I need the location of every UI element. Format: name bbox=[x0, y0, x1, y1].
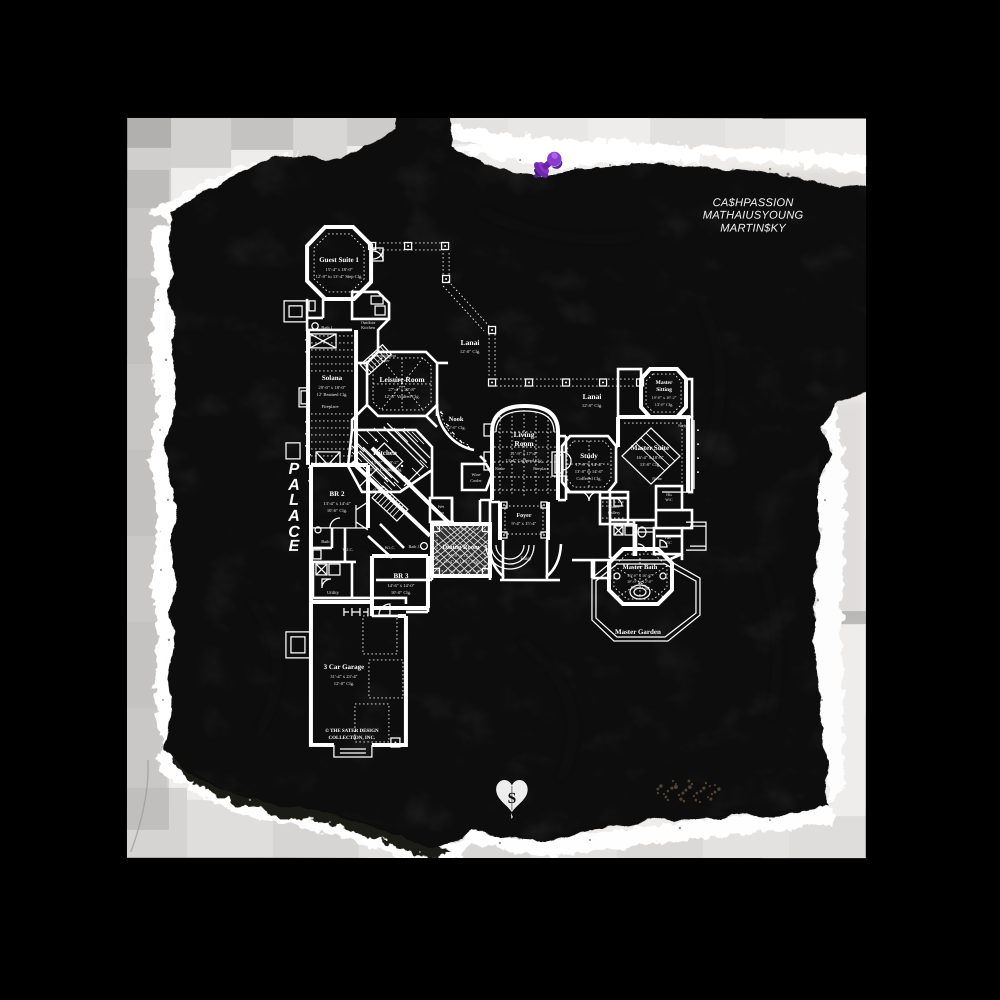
svg-text:Bath 1: Bath 1 bbox=[321, 325, 333, 330]
svg-text:Living: Living bbox=[514, 430, 535, 439]
svg-text:20′-0″ x 18′-0″: 20′-0″ x 18′-0″ bbox=[318, 385, 345, 390]
svg-text:Master Bath: Master Bath bbox=[623, 564, 658, 571]
svg-text:Master Suite: Master Suite bbox=[631, 444, 669, 452]
svg-text:Foyer: Foyer bbox=[516, 513, 531, 519]
svg-text:20′-0″ x 16′-6″: 20′-0″ x 16′-6″ bbox=[628, 573, 653, 578]
svg-text:Guest Suite 1: Guest Suite 1 bbox=[319, 256, 359, 264]
svg-text:12′-0″ Clg.: 12′-0″ Clg. bbox=[460, 349, 480, 354]
svg-text:Lanai: Lanai bbox=[583, 392, 602, 401]
svg-text:Entry: Entry bbox=[520, 557, 532, 562]
svg-text:Dome Clg.: Dome Clg. bbox=[631, 585, 649, 590]
svg-text:Niche: Niche bbox=[652, 476, 662, 481]
svg-text:Bath 2: Bath 2 bbox=[321, 539, 333, 544]
svg-text:Dining Room: Dining Room bbox=[442, 544, 480, 551]
svg-text:W.i.C.: W.i.C. bbox=[385, 545, 396, 550]
svg-text:21′-9″ x 17′-4″: 21′-9″ x 17′-4″ bbox=[510, 451, 537, 456]
svg-text:Wet: Wet bbox=[438, 504, 445, 509]
svg-text:16′-4″ x 18′-0″: 16′-4″ x 18′-0″ bbox=[636, 455, 663, 460]
svg-text:13′-4″ to 14′-0″ Clg.: 13′-4″ to 14′-0″ Clg. bbox=[443, 559, 479, 564]
svg-text:L: L bbox=[289, 492, 299, 509]
svg-text:COLLECTION, INC.: COLLECTION, INC. bbox=[329, 736, 377, 741]
svg-text:9′-4″ x 15′-4″: 9′-4″ x 15′-4″ bbox=[511, 521, 536, 526]
svg-text:MATHAIUSYOUNG: MATHAIUSYOUNG bbox=[703, 210, 804, 222]
svg-text:Niche: Niche bbox=[495, 466, 505, 471]
svg-text:10′-6″ Clg.: 10′-6″ Clg. bbox=[327, 508, 347, 513]
svg-text:12′-0″ Clg.: 12′-0″ Clg. bbox=[334, 681, 354, 686]
svg-text:14′-0″ x 17′-4″: 14′-0″ x 17′-4″ bbox=[448, 553, 474, 558]
svg-text:12′-8″ Vaulted Clg.: 12′-8″ Vaulted Clg. bbox=[384, 394, 419, 399]
svg-text:12′-0″ Clg.: 12′-0″ Clg. bbox=[446, 425, 465, 430]
svg-text:Lanai: Lanai bbox=[461, 338, 480, 347]
svg-text:A: A bbox=[287, 508, 300, 525]
svg-text:Wine: Wine bbox=[472, 472, 481, 477]
svg-text:13′-0″ to 14′-0″: 13′-0″ to 14′-0″ bbox=[575, 469, 604, 474]
svg-text:P: P bbox=[289, 461, 300, 478]
svg-text:Fireplace: Fireplace bbox=[533, 466, 549, 471]
svg-text:13′-0″ Clg.: 13′-0″ Clg. bbox=[640, 462, 660, 467]
svg-text:14′-6″ x 14′-0″: 14′-6″ x 14′-0″ bbox=[387, 583, 414, 588]
svg-text:13′-4″ x 14′-4″: 13′-4″ x 14′-4″ bbox=[323, 501, 350, 506]
svg-text:15′-4″ x 18′-0″: 15′-4″ x 18′-0″ bbox=[325, 267, 352, 272]
svg-text:12′-0″ Clg.: 12′-0″ Clg. bbox=[582, 403, 602, 408]
svg-text:Master Garden: Master Garden bbox=[615, 628, 661, 636]
svg-text:S: S bbox=[508, 790, 517, 807]
svg-text:Sitting: Sitting bbox=[656, 387, 672, 393]
svg-text:© THE SATER DESIGN: © THE SATER DESIGN bbox=[325, 728, 379, 734]
svg-text:BR 2: BR 2 bbox=[330, 490, 345, 498]
svg-text:Bath 3: Bath 3 bbox=[408, 544, 419, 549]
svg-text:Kitchen: Kitchen bbox=[361, 325, 376, 330]
svg-text:13′-4″ Coffered Clg.: 13′-4″ Coffered Clg. bbox=[505, 458, 543, 463]
svg-text:Study: Study bbox=[580, 452, 598, 460]
svg-text:Coffered Clg.: Coffered Clg. bbox=[576, 476, 601, 481]
svg-text:Fireplace: Fireplace bbox=[321, 404, 338, 409]
svg-text:Solana: Solana bbox=[322, 374, 343, 382]
svg-text:MARTIN$KY: MARTIN$KY bbox=[720, 223, 787, 235]
svg-text:Nook: Nook bbox=[449, 416, 464, 423]
svg-text:Master: Master bbox=[656, 380, 673, 386]
svg-text:Utility: Utility bbox=[327, 590, 340, 595]
svg-text:Leisure Room: Leisure Room bbox=[380, 375, 426, 384]
svg-text:Bar: Bar bbox=[438, 510, 445, 515]
svg-text:12′ Beamed Clg.: 12′ Beamed Clg. bbox=[317, 392, 348, 397]
svg-text:12′-0″ to 13′-4″ Step Clg.: 12′-0″ to 13′-4″ Step Clg. bbox=[316, 274, 363, 279]
svg-text:10′-0″ x 10′-2″: 10′-0″ x 10′-2″ bbox=[652, 395, 677, 400]
svg-text:CA$HPASSION: CA$HPASSION bbox=[713, 197, 795, 209]
svg-text:3 Car Garage: 3 Car Garage bbox=[324, 663, 365, 671]
svg-text:27′-4″ x 22′-8″: 27′-4″ x 22′-8″ bbox=[388, 387, 415, 392]
svg-text:W/C: W/C bbox=[665, 497, 673, 502]
svg-text:10′-0″ Clg.: 10′-0″ Clg. bbox=[391, 590, 411, 595]
svg-text:13′-0″ Clg.: 13′-0″ Clg. bbox=[655, 402, 673, 407]
svg-text:17′-0″ x 14′-4″: 17′-0″ x 14′-4″ bbox=[575, 462, 602, 467]
svg-text:E: E bbox=[289, 538, 301, 555]
svg-text:Room: Room bbox=[514, 439, 534, 448]
svg-text:Niche: Niche bbox=[678, 423, 688, 428]
svg-text:Cooler: Cooler bbox=[470, 478, 482, 483]
svg-text:31′-4″ x 23′-4″: 31′-4″ x 23′-4″ bbox=[330, 674, 357, 679]
svg-text:10′-0″ to 12′-0″: 10′-0″ to 12′-0″ bbox=[627, 579, 653, 584]
svg-text:W.I.C.: W.I.C. bbox=[343, 547, 354, 552]
